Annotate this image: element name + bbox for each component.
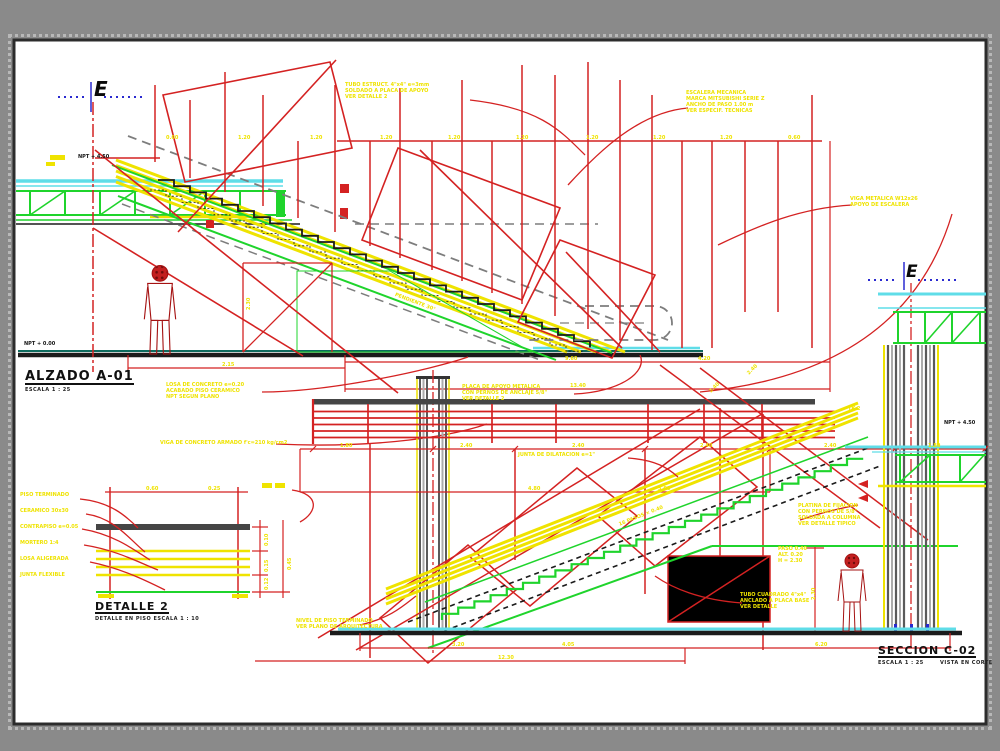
annotation-cluster: LOSA DE CONCRETO e=0.20ACABADO PISO CERA… xyxy=(166,382,244,400)
dim-label: 0.25 xyxy=(208,486,220,492)
cad-viewer-canvas[interactable]: E E NPT + 4.50 NPT + 0.00 NPT + 4.50 ALZ… xyxy=(0,0,1000,751)
dim-label: 2.40 xyxy=(700,443,712,449)
alzado-title: ALZADO A-01 xyxy=(25,370,134,385)
seccion-subtitle-2: VISTA EN CORTE xyxy=(940,660,993,666)
dim-label: 1.20 xyxy=(380,135,392,141)
dim-label: 2.40 xyxy=(824,443,836,449)
npt-lower-label: NPT + 0.00 xyxy=(24,341,55,347)
annotation-cluster: PASO 0.40ALT. 0.20H = 2.30 xyxy=(778,546,807,564)
dim-label: 1.20 xyxy=(653,135,665,141)
dim-label: 4.05 xyxy=(562,642,574,648)
escalator-drawing xyxy=(0,0,1000,751)
annotation-cluster: PLATINA DE FIJACIONCON PERNOS DE 5/8"SOL… xyxy=(798,503,860,527)
dim-label: 1.20 xyxy=(310,135,322,141)
npt-upper-label: NPT + 4.50 xyxy=(78,154,109,160)
dim-label: 4.80 xyxy=(528,486,540,492)
dim-label: 1.20 xyxy=(720,135,732,141)
dim-label: TK-2 xyxy=(848,406,860,412)
dim-label: 1.80 xyxy=(928,443,940,449)
axis-e-label-alzado: E xyxy=(94,80,108,98)
dim-label: 0.60 xyxy=(146,486,158,492)
annotation-cluster: TUBO CUADRADO 4"x4"ANCLADO A PLACA BASEV… xyxy=(740,592,809,610)
dim-label: 1.20 xyxy=(516,135,528,141)
annotation-cluster: VIGA DE CONCRETO ARMADO f'c=210 kg/cm2 xyxy=(160,440,287,446)
dim-label: 0.10 xyxy=(264,534,270,546)
annotation-cluster: PISO TERMINADOCERAMICO 30x30CONTRAPISO e… xyxy=(20,492,78,588)
dim-label: 2.40 xyxy=(460,443,472,449)
annotation-cluster: NIVEL DE PISO TERMINADOVER PLANO DE ARQU… xyxy=(296,618,383,630)
dim-label: 1.20 xyxy=(448,135,460,141)
dim-label: 1.20 xyxy=(238,135,250,141)
seccion-title: SECCION C-02 xyxy=(878,645,976,658)
annotation-cluster: PLACA DE APOYO METALICACON PERNOS DE ANC… xyxy=(462,384,547,402)
axis-e-label-seccion: E xyxy=(906,263,918,281)
dim-label: 0.60 xyxy=(788,135,800,141)
dim-label: 12.30 xyxy=(498,655,514,661)
annotation-cluster: TUBO ESTRUCT. 4"x4" e=3mmSOLDADO A PLACA… xyxy=(345,82,429,100)
dim-label: 0.15 xyxy=(264,560,270,572)
dim-label: 6.20 xyxy=(815,642,827,648)
detalle-subtitle: DETALLE EN PISO ESCALA 1 : 10 xyxy=(95,616,199,622)
alzado-subtitle: ESCALA 1 : 25 xyxy=(25,387,71,393)
dim-label: 2.15 xyxy=(222,362,234,368)
dim-label: 9.60 xyxy=(565,356,577,362)
dim-label: 3.20 xyxy=(452,642,464,648)
annotation-cluster: JUNTA DE DILATACION e=1" xyxy=(518,452,595,458)
dim-label: 3.60 xyxy=(658,486,670,492)
seccion-subtitle: ESCALA 1 : 25 xyxy=(878,660,924,666)
dim-label: 2.40 xyxy=(572,443,584,449)
dim-label: 0.12 xyxy=(264,578,270,590)
dim-label: 1.20 xyxy=(586,135,598,141)
dim-label: 1.80 xyxy=(340,443,352,449)
detalle-title: DETALLE 2 xyxy=(95,601,169,614)
npt-right-label: NPT + 4.50 xyxy=(944,420,975,426)
annotation-cluster: VIGA METALICA W12x26APOYO DE ESCALERA xyxy=(850,196,918,208)
dim-label: 0.45 xyxy=(287,558,293,570)
dim-label: 0.60 xyxy=(166,135,178,141)
annotation-cluster: ESCALERA MECANICAMARCA MITSUBISHI SERIE … xyxy=(686,90,764,114)
dim-label: 2.30 xyxy=(811,588,817,600)
dim-label: 2.30 xyxy=(246,298,252,310)
dim-label: 13.40 xyxy=(570,383,586,389)
dim-label: 4.20 xyxy=(698,356,710,362)
